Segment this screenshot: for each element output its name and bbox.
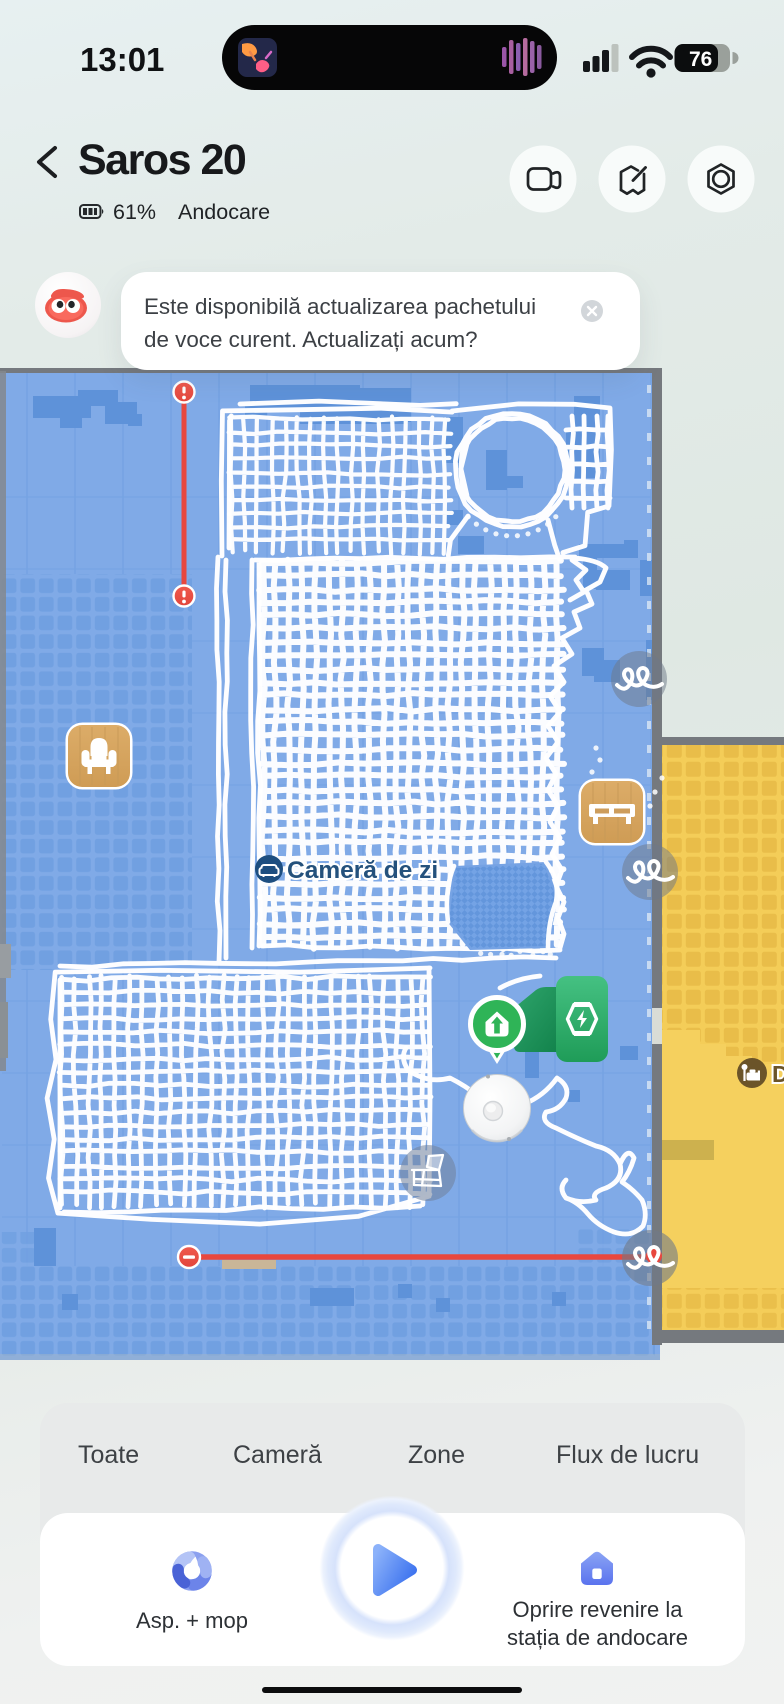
svg-text:76: 76 [689,48,712,71]
svg-text:Saros 20: Saros 20 [78,136,246,184]
svg-text:13:01: 13:01 [80,41,164,78]
svg-text:Do: Do [772,1061,784,1087]
svg-text:61%: 61% [113,200,156,224]
svg-text:Andocare: Andocare [178,200,270,224]
svg-text:Cameră de zi: Cameră de zi [287,857,438,884]
